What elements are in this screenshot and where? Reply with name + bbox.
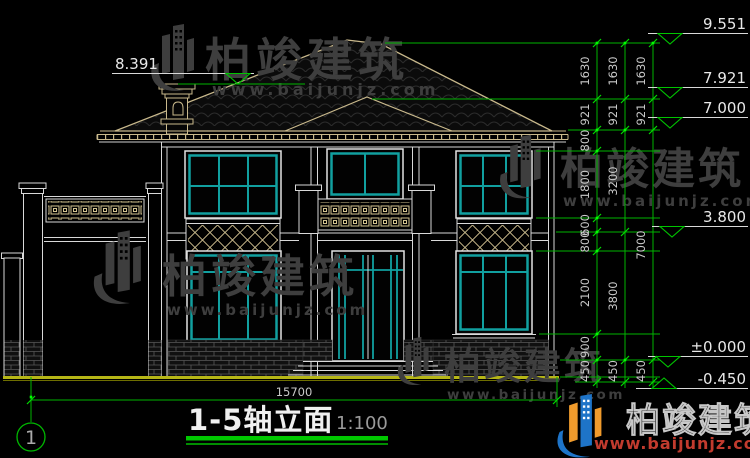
dim-label: 900 [578,336,592,358]
title-block: 1-5轴立面 1:100 [186,403,388,445]
dim-label: 800 [578,231,592,253]
window-2f-right [456,151,532,218]
dim-label: 1800 [578,170,592,199]
dim-label: 3200 [606,166,620,195]
dim-label: 921 [578,104,592,126]
dim-label: 450 [606,360,620,382]
elevation-value: 7.921 [703,69,746,87]
elevation-value: 3.800 [703,208,746,226]
dim-label: 2100 [578,278,592,307]
watermark-site: www.baijunjz.com [447,387,625,403]
dim-label: 1630 [578,56,592,85]
dim-labels-outer: 1630 921 7000 450 [634,56,648,382]
dim-label: 921 [606,104,620,126]
dim-label: 1630 [606,56,620,85]
title-underline [186,436,388,441]
dim-label: 7000 [634,230,648,259]
elevation-value: 9.551 [703,15,746,33]
elevation-value: -0.450 [698,370,746,388]
drawing-scale: 1:100 [336,413,388,434]
watermark-brand: 柏竣建筑 [162,250,358,303]
elevation-drawing: 柏竣建筑 www.baijunjz.com 柏竣建筑 www.baijunjz.… [0,0,750,458]
dim-label: 800 [578,130,592,152]
dim-label: 1630 [634,56,648,85]
cad-elevation-canvas: 柏竣建筑 www.baijunjz.com 柏竣建筑 www.baijunjz.… [0,0,750,458]
watermark-brand: 柏竣建筑 [205,33,409,87]
footer-brand-site: www.baijunjz.com [594,434,750,453]
footer-brand-logo: 柏竣建筑 www.baijunjz.com [557,394,750,457]
watermark-site: www.baijunjz.com [212,80,439,99]
watermark-site: www.baijunjz.com [167,301,368,319]
dim-labels-mid: 1630 921 3200 3800 450 [606,56,620,382]
window-2f-center [327,149,403,199]
axis-number: 1 [25,427,37,449]
window-2f-left [185,151,281,218]
drawing-title: 1-5轴立面 [188,403,333,437]
dim-label: 450 [634,360,648,382]
elevation-value: 7.000 [703,99,746,117]
window-1f-right [452,251,536,338]
dim-label: 3800 [606,281,620,310]
elevation-value-chimney: 8.391 [115,55,158,73]
overall-width-label: 15700 [276,385,313,399]
dim-labels-inner: 1630 921 800 1800 600 800 2100 900 450 [578,56,592,382]
axis-bubble-1: 1 [17,423,45,451]
dim-label: 450 [578,360,592,382]
dim-label: 921 [634,104,648,126]
elevation-value: ±0.000 [690,338,746,356]
title-underline-2 [186,443,388,445]
